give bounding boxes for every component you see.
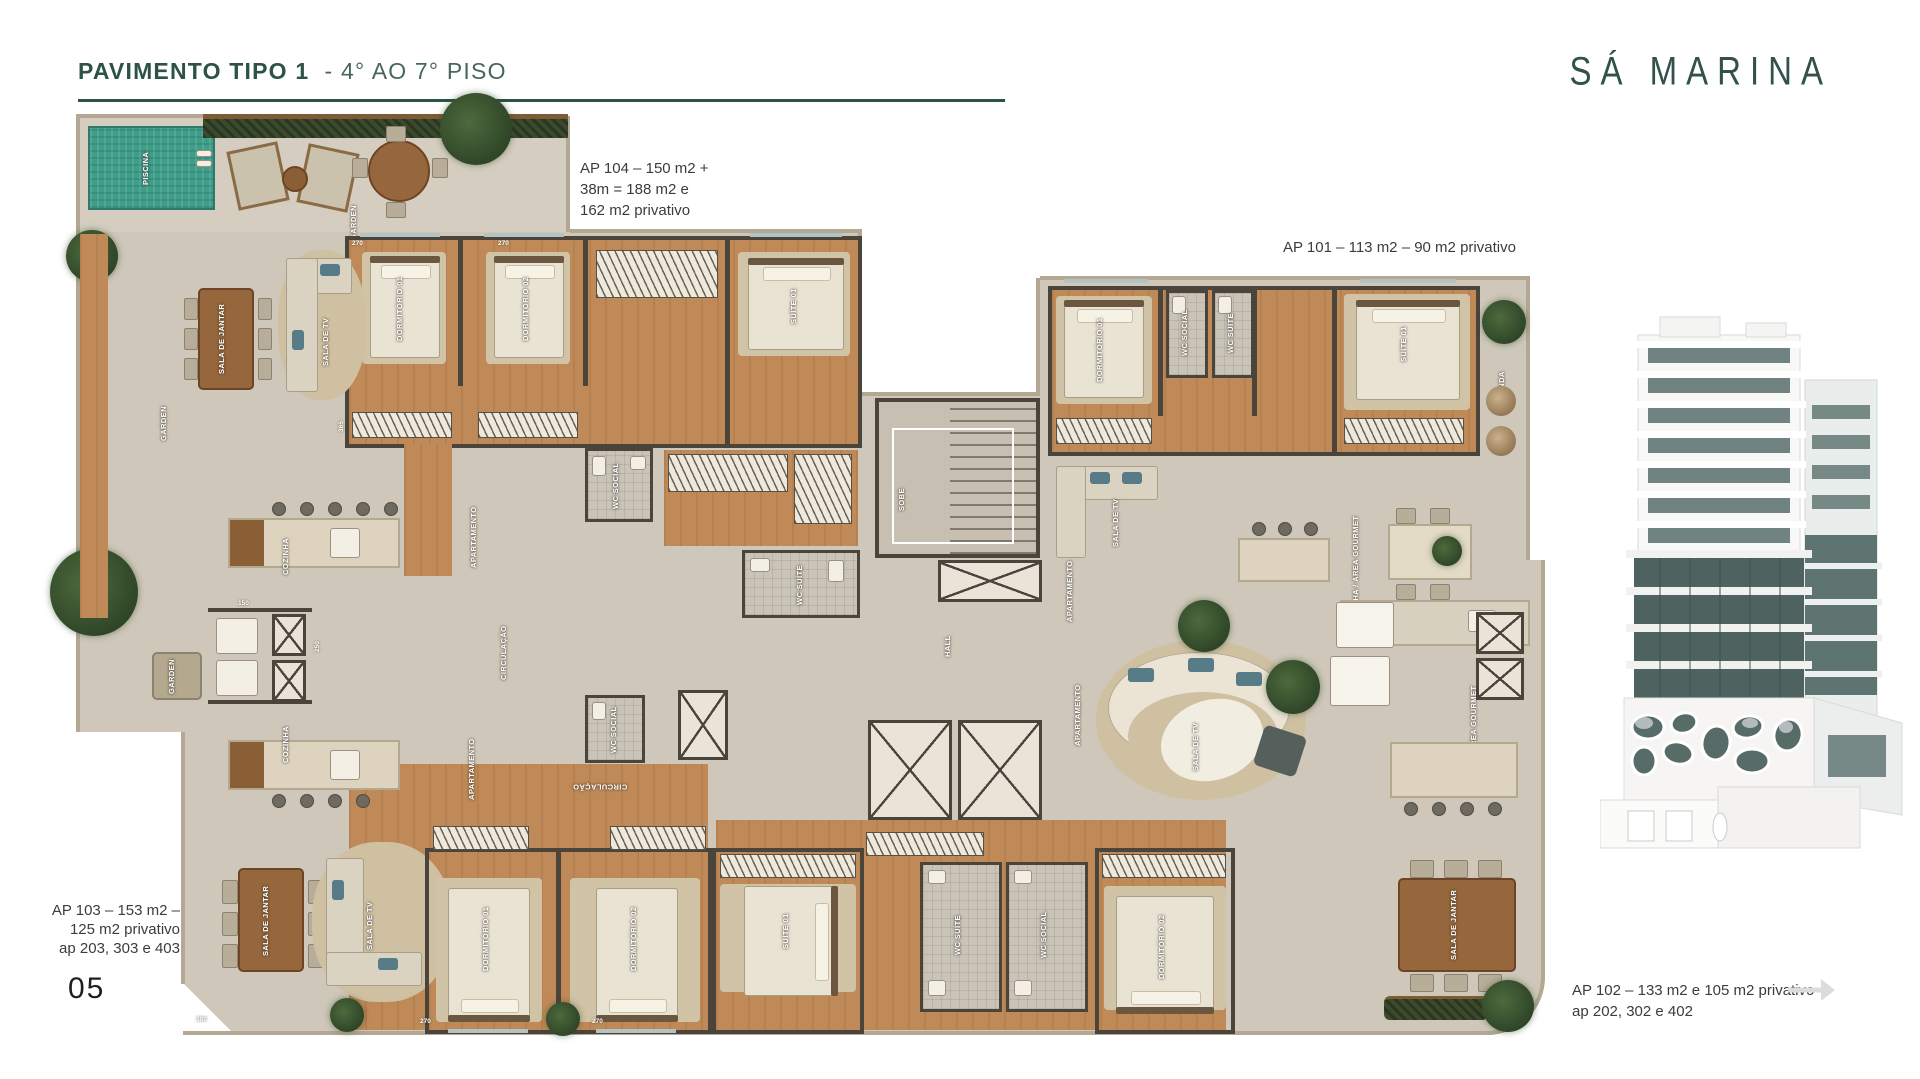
- wc-fixture: [592, 702, 606, 720]
- dimension: 380: [196, 1016, 207, 1023]
- dimension: 250: [314, 632, 321, 652]
- room-label-ap104-wc-social: WC SOCIAL: [612, 456, 621, 516]
- plan-edge: [1526, 278, 1530, 560]
- kitchen-island: [1238, 538, 1330, 582]
- garden-deck: [80, 234, 108, 618]
- chair: [1396, 508, 1416, 524]
- elevator: [272, 660, 306, 702]
- chair: [1396, 584, 1416, 600]
- room-label-circulacao: CIRCULAÇÃO: [500, 618, 509, 688]
- room-label-ap103-cozinha: COZINHA: [282, 712, 291, 778]
- room-label-garden-small: GARDEN: [168, 655, 177, 699]
- palm-tree: [440, 93, 512, 165]
- side-table: [282, 166, 308, 192]
- wc-fixture: [592, 456, 606, 476]
- elevator: [272, 614, 306, 656]
- window: [484, 233, 564, 237]
- elevator: [1476, 658, 1524, 700]
- shaft: [216, 618, 258, 654]
- counter: [230, 742, 264, 788]
- stool: [1460, 802, 1474, 816]
- window: [360, 233, 440, 237]
- room-label-ap102-wc-suite: WC SUÍTE: [954, 900, 963, 970]
- room-label-ap104-wc-suite: WC SUÍTE: [796, 558, 805, 612]
- room-label-sobe: SOBE: [898, 478, 907, 522]
- room-label-ap103-dorm2: DORMITÓRIO 02: [630, 896, 639, 982]
- cushion: [1128, 668, 1154, 682]
- tree: [1482, 300, 1526, 344]
- dimension: 150: [238, 600, 249, 607]
- room-label-ap103-circulacao: CIRCULAÇÃO: [552, 782, 648, 791]
- stool: [272, 794, 286, 808]
- counter: [230, 520, 264, 566]
- cushion: [320, 264, 340, 276]
- wall: [458, 236, 463, 386]
- hedge: [1384, 996, 1488, 1020]
- plan-edge: [181, 732, 185, 984]
- sliding-door: [1330, 656, 1390, 706]
- stool: [1488, 802, 1502, 816]
- round-table: [368, 140, 430, 202]
- stool: [384, 502, 398, 516]
- chair: [222, 912, 238, 936]
- chair: [184, 328, 198, 350]
- sliding-door: [1336, 602, 1394, 648]
- room-label-ap101-sala-tv: SALA DE TV: [1112, 492, 1121, 554]
- stool: [1278, 522, 1292, 536]
- chair: [1430, 508, 1450, 524]
- room-label-ap103-apartamento: APARTAMENTO: [468, 730, 477, 808]
- room-label-ap102-sala-tv: SALA DE TV: [1192, 718, 1201, 776]
- elevator: [1476, 612, 1524, 654]
- stool: [1252, 522, 1266, 536]
- bed: [370, 260, 440, 358]
- closet: [1056, 418, 1152, 444]
- chair: [352, 158, 368, 178]
- chair: [258, 358, 272, 380]
- window: [448, 1029, 528, 1033]
- chair: [258, 328, 272, 350]
- window: [1360, 279, 1456, 283]
- cushion: [1090, 472, 1110, 484]
- plan-edge: [1036, 278, 1040, 395]
- wall: [725, 236, 730, 448]
- tree: [1266, 660, 1320, 714]
- bush: [330, 998, 364, 1032]
- room-label-ap103-sala-jantar: SALA DE JANTAR: [262, 880, 271, 962]
- plant: [1432, 536, 1462, 566]
- dimension: 365: [338, 412, 345, 432]
- stair-outline: [892, 428, 1014, 544]
- room-label-ap104-dorm2: DORMITÓRIO 02: [522, 272, 531, 346]
- wc-fixture: [928, 980, 946, 996]
- wc-fixture: [1014, 870, 1032, 884]
- room-label-ap104-apartamento: APARTAMENTO: [470, 500, 479, 574]
- room-label-ap102-wc-social: WC SOCIAL: [1040, 900, 1049, 970]
- dining-table: [238, 868, 304, 972]
- window: [596, 1029, 676, 1033]
- room-label-ap104-suite: SUÍTE 01: [790, 278, 799, 334]
- closet: [433, 826, 529, 850]
- window: [750, 233, 842, 237]
- room-label-ap104-dorm1: DORMITÓRIO 01: [396, 272, 405, 346]
- chair: [432, 158, 448, 178]
- wall: [583, 236, 588, 386]
- stool: [300, 794, 314, 808]
- elevator: [868, 720, 952, 820]
- wc-fixture: [630, 456, 646, 470]
- closet: [668, 454, 788, 492]
- garden-table: [152, 652, 202, 700]
- chair: [1410, 860, 1434, 878]
- wall: [208, 608, 312, 612]
- room-label-ap103-dorm1: DORMITÓRIO 01: [482, 896, 491, 982]
- plan-edge: [862, 392, 1040, 396]
- dimension: 270: [352, 240, 363, 247]
- closet: [1344, 418, 1464, 444]
- room-label-ap102-sala-jantar: SALA DE JANTAR: [1450, 886, 1459, 964]
- stool: [356, 794, 370, 808]
- chair: [1430, 584, 1450, 600]
- wc-fixture: [1014, 980, 1032, 996]
- dimension: 270: [420, 1018, 431, 1025]
- plant-pot: [1486, 386, 1516, 416]
- cushion: [1122, 472, 1142, 484]
- elevator: [938, 560, 1042, 602]
- chair: [386, 126, 406, 142]
- closet: [352, 412, 452, 438]
- plan-edge: [1541, 560, 1545, 980]
- building-render: [1600, 295, 1920, 855]
- room-label-ap101-wc-suite: WC SUÍTE: [1227, 300, 1236, 366]
- room-label-piscina: PISCINA: [142, 140, 151, 196]
- chair: [1444, 974, 1468, 992]
- wc-fixture: [928, 870, 946, 884]
- pool-step: [196, 160, 212, 167]
- closet: [478, 412, 578, 438]
- wall: [1332, 286, 1337, 456]
- room-label-ap101-suite: SUÍTE 01: [1400, 314, 1409, 374]
- cushion: [378, 958, 398, 970]
- cushion: [1236, 672, 1262, 686]
- cooktop: [330, 528, 360, 558]
- closet: [794, 454, 852, 524]
- pool-step: [196, 150, 212, 157]
- stool: [272, 502, 286, 516]
- sofa: [1056, 466, 1086, 558]
- closet: [866, 832, 984, 856]
- room-label-ap102-dorm2: DORMITÓRIO 02: [1158, 904, 1167, 990]
- tree: [1482, 980, 1534, 1032]
- stool: [1404, 802, 1418, 816]
- slide: PAVIMENTO TIPO 1 - 4° AO 7° PISO SÁ MARI…: [0, 0, 1920, 1079]
- chair: [184, 298, 198, 320]
- room-label-garden-left: GARDEN: [160, 392, 169, 456]
- room-label-ap103-sala-tv: SALA DE TV: [366, 894, 375, 958]
- stool: [328, 502, 342, 516]
- wc-fixture: [828, 560, 844, 582]
- room-label-ap102-apartamento: APARTAMENTO: [1074, 676, 1083, 754]
- stool: [356, 502, 370, 516]
- closet: [1102, 854, 1226, 878]
- elevator: [678, 690, 728, 760]
- room-label-ap103-wc-social: WC SOCIAL: [610, 700, 619, 760]
- room-label-ap104-sala-jantar: SALA DE JANTAR: [218, 298, 227, 380]
- room-label-ap104-sala-tv: SALA DE TV: [322, 310, 331, 374]
- shaft: [216, 660, 258, 696]
- stool: [300, 502, 314, 516]
- bush: [546, 1002, 580, 1036]
- stool: [1432, 802, 1446, 816]
- kitchen-island: [1390, 742, 1518, 798]
- stool: [1304, 522, 1318, 536]
- room-label-ap101-apartamento: APARTAMENTO: [1066, 552, 1075, 630]
- room-label-ap101-dorm1: DORMITÓRIO 01: [1096, 310, 1105, 390]
- room-label-ap102-suite: SUÍTE 01: [782, 902, 791, 960]
- chair: [1410, 974, 1434, 992]
- cooktop: [330, 750, 360, 780]
- cushion: [332, 880, 344, 900]
- chair: [258, 298, 272, 320]
- closet: [720, 854, 856, 878]
- room-label-hall: HALL: [944, 622, 953, 670]
- tree: [1178, 600, 1230, 652]
- plan-edge: [78, 114, 208, 118]
- chair: [222, 880, 238, 904]
- stool: [328, 794, 342, 808]
- wc-fixture: [750, 558, 770, 572]
- chair: [1478, 860, 1502, 878]
- closet: [596, 250, 718, 298]
- cushion: [292, 330, 304, 350]
- room-label-ap101-wc-social: WC SOCIAL: [1181, 300, 1190, 366]
- elevator: [958, 720, 1042, 820]
- pool: [88, 126, 215, 210]
- window: [1064, 279, 1148, 283]
- chair: [184, 358, 198, 380]
- plant-pot: [1486, 426, 1516, 456]
- sofa: [286, 258, 318, 392]
- wall: [1158, 286, 1163, 416]
- room-label-ap104-cozinha: COZINHA: [282, 524, 291, 590]
- chair: [1444, 860, 1468, 878]
- dimension: 270: [498, 240, 509, 247]
- dimension: 270: [592, 1018, 603, 1025]
- ap104-corridor: [404, 444, 452, 576]
- chair: [222, 944, 238, 968]
- closet: [610, 826, 706, 850]
- cushion: [1188, 658, 1214, 672]
- chair: [386, 202, 406, 218]
